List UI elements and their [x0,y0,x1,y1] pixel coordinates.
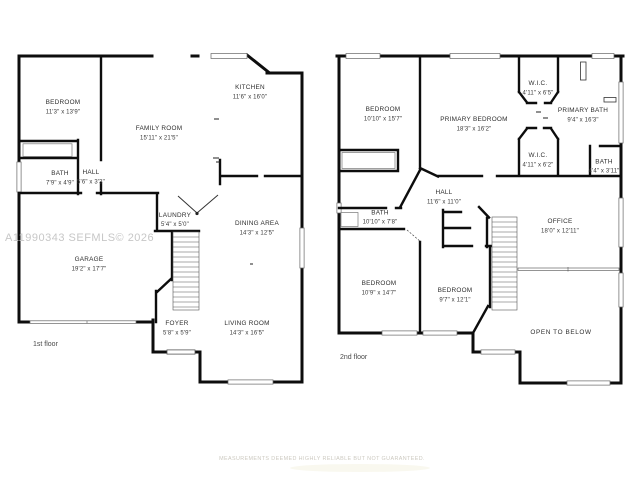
room-label: PRIMARY BATH [558,107,608,114]
floor2-plan: BEDROOM 10'10" x 15'7" PRIMARY BEDROOM 1… [337,54,623,386]
front-door [167,350,195,354]
room-label: BATH [595,159,613,166]
room-label: BEDROOM [46,99,81,106]
room-dims: 4'11" x 6'5" [523,91,554,97]
disclaimer-text: MEASUREMENTS DEEMED HIGHLY RELIABLE BUT … [219,456,425,462]
room-label: BATH [51,170,69,177]
primary-bath-fixture [581,62,587,80]
room-dims: 15'11" x 21'5" [140,136,178,142]
room-label: OFFICE [548,218,573,225]
room-label: DINING AREA [235,220,279,227]
room-dims: 18'0" x 12'11" [541,229,579,235]
room-label: FOYER [165,320,188,327]
floor1-stairs [173,232,199,310]
room-dims: 5'6" x 3'3" [77,180,105,186]
room-label: FAMILY ROOM [136,125,183,132]
bedroom-closet [23,144,72,157]
floor2-stairs [492,217,517,310]
room-label: BATH [371,210,389,217]
bedroom2-closet [342,153,395,169]
room-dims: 10'9" x 14'7" [362,291,397,297]
room-label: KITCHEN [235,84,265,91]
bedroom-door-swing [407,230,421,242]
floorplan-page: BEDROOM 11'3" x 13'9" FAMILY ROOM 15'11"… [0,0,640,480]
room-dims: 19'2" x 17'7" [72,267,107,273]
room-label: GARAGE [75,256,104,263]
railing [518,267,619,272]
primary-bath-shelf [604,98,616,103]
room-dims: 5'4" x 5'0" [161,222,189,228]
floor2-label: 2nd floor [340,354,368,361]
garage-door [30,321,136,324]
room-dims: 9'7" x 12'1" [439,298,470,304]
room-dims: 11'6" x 16'0" [233,95,267,101]
room-dims: 5'8" x 5'9" [163,331,191,337]
room-dims: 10'10" x 15'7" [364,117,402,123]
room-dims: 7'9" x 4'9" [46,181,74,187]
room-dims: 14'3" x 16'5" [230,331,265,337]
room-dims: 4'4" x 3'11" [589,169,620,175]
kitchen-cabinet-ticks [213,119,253,264]
room-label: BEDROOM [362,280,397,287]
room-dims: 4'11" x 6'2" [523,163,554,169]
floor1-plan: BEDROOM 11'3" x 13'9" FAMILY ROOM 15'11"… [17,54,304,385]
room-dims: 10'10" x 7'8" [363,220,398,226]
room-label: W.I.C. [529,152,548,159]
room-dims: 11'3" x 13'9" [46,110,80,116]
room-dims: 11'6" x 11'0" [427,200,461,206]
room-dims: 9'4" x 16'3" [567,118,598,124]
room-label: BEDROOM [366,106,401,113]
room-dims: 14'3" x 12'5" [240,231,275,237]
room-label: W.I.C. [529,80,548,87]
room-label: PRIMARY BEDROOM [440,116,507,123]
mls-watermark: A11990343 SEFMLS© 2026 [5,232,154,244]
room-label: HALL [436,189,453,196]
room-label: LIVING ROOM [224,320,269,327]
wic-door-ticks [536,112,548,118]
faint-smudge [290,464,430,472]
floor1-label: 1st floor [33,341,59,348]
room-label: BEDROOM [438,287,473,294]
room-label: HALL [83,169,100,176]
room-label: LAUNDRY [159,212,192,219]
open-to-below-label: OPEN TO BELOW [530,329,592,336]
bath-closet [341,213,358,227]
floorplan-drawing: BEDROOM 11'3" x 13'9" FAMILY ROOM 15'11"… [0,0,640,480]
room-dims: 18'3" x 16'2" [457,127,492,133]
